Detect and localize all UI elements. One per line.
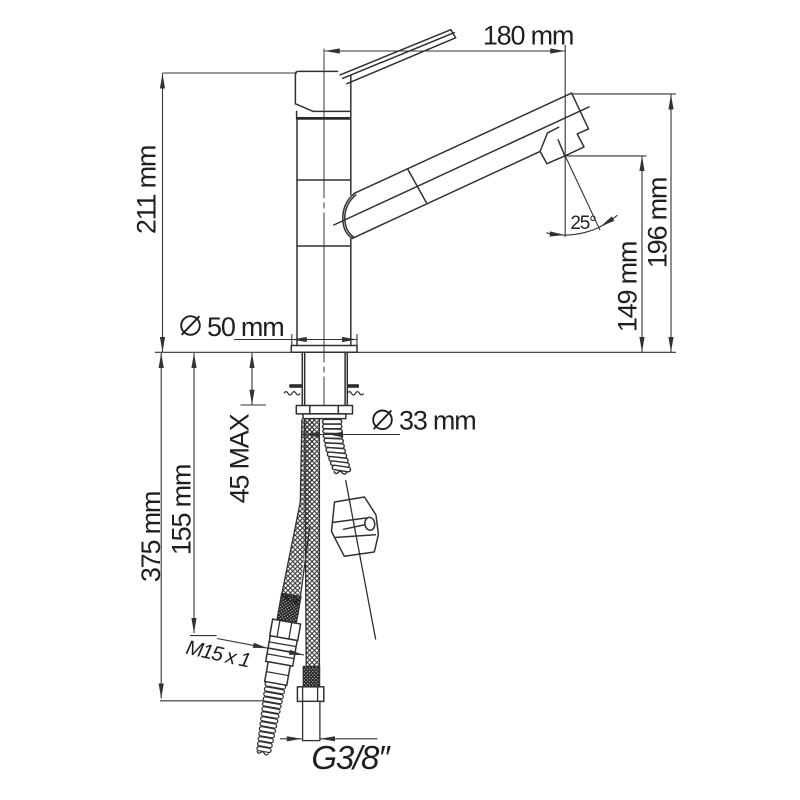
svg-text:25°: 25° [570,213,596,234]
svg-text:50 mm: 50 mm [207,312,284,342]
svg-text:45 MAX: 45 MAX [225,413,255,503]
svg-text:211 mm: 211 mm [132,146,162,234]
svg-text:375 mm: 375 mm [136,492,166,582]
svg-text:149 mm: 149 mm [613,242,643,332]
svg-text:G3/8″: G3/8″ [311,739,391,776]
svg-text:180 mm: 180 mm [483,21,573,51]
svg-text:196 mm: 196 mm [643,178,673,268]
svg-text:33 mm: 33 mm [399,406,476,436]
svg-text:155 mm: 155 mm [167,465,197,555]
